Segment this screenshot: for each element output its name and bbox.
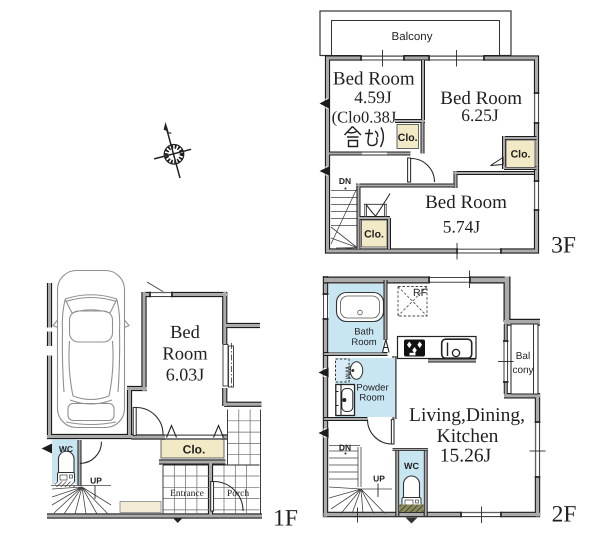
svg-text:WC: WC	[404, 461, 419, 471]
svg-text:6.25J: 6.25J	[461, 105, 499, 125]
svg-text:Balcony: Balcony	[392, 31, 433, 43]
svg-text:Room: Room	[162, 345, 208, 365]
svg-text:DN: DN	[339, 176, 351, 186]
svg-text:2F: 2F	[552, 502, 577, 528]
svg-text:cony: cony	[512, 365, 533, 376]
svg-text:Clo.: Clo.	[511, 149, 531, 161]
svg-text:1F: 1F	[273, 506, 298, 532]
svg-text:Clo.: Clo.	[364, 229, 384, 241]
svg-text:Clo.: Clo.	[183, 443, 206, 457]
svg-text:RF: RF	[413, 287, 427, 299]
svg-text:(Clo0.38J: (Clo0.38J	[332, 108, 397, 127]
svg-text:UP: UP	[90, 476, 102, 486]
svg-text:15.26J: 15.26J	[440, 446, 492, 467]
svg-text:Room: Room	[351, 337, 376, 348]
svg-text:Living,Dining,: Living,Dining,	[409, 405, 525, 426]
svg-text:Kitchen: Kitchen	[437, 426, 499, 447]
svg-text:6.03J: 6.03J	[166, 365, 205, 385]
svg-text:4.59J: 4.59J	[354, 87, 392, 107]
svg-text:DN: DN	[339, 443, 351, 453]
svg-text:Bal: Bal	[516, 351, 530, 362]
svg-text:Room: Room	[359, 393, 384, 404]
svg-text:5.74J: 5.74J	[443, 217, 481, 237]
svg-text:Bed: Bed	[170, 323, 201, 343]
svg-text:3F: 3F	[551, 233, 576, 259]
svg-text:Bath: Bath	[354, 327, 374, 338]
svg-text:UP: UP	[373, 474, 385, 484]
svg-text:Clo.: Clo.	[398, 132, 418, 144]
svg-text:Bed Room: Bed Room	[425, 192, 507, 213]
svg-text:Entrance: Entrance	[170, 489, 204, 499]
